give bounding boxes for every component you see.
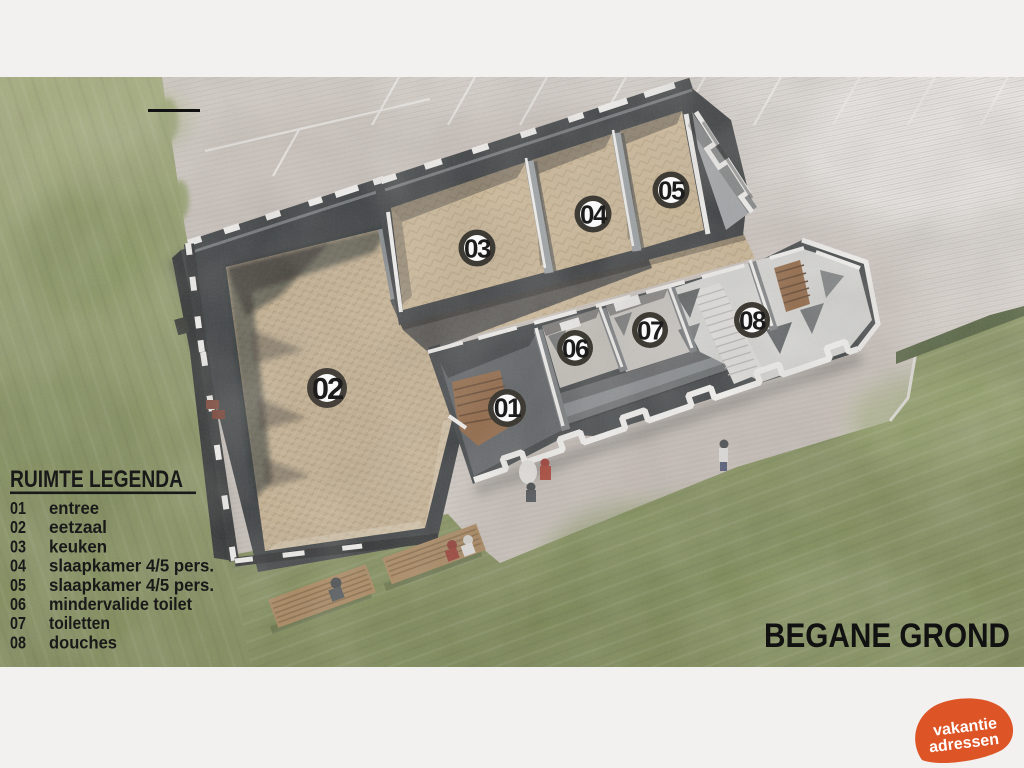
svg-text:02: 02 <box>10 517 26 537</box>
svg-text:01: 01 <box>10 498 26 518</box>
svg-text:06: 06 <box>562 334 589 364</box>
svg-text:02: 02 <box>312 371 343 406</box>
svg-text:BEGANE GROND: BEGANE GROND <box>764 617 1010 655</box>
svg-text:06: 06 <box>10 594 26 614</box>
svg-text:08: 08 <box>10 632 26 652</box>
svg-text:04: 04 <box>580 200 608 230</box>
svg-text:05: 05 <box>658 176 685 206</box>
svg-text:eetzaal: eetzaal <box>49 517 107 537</box>
svg-text:RUIMTE LEGENDA: RUIMTE LEGENDA <box>10 466 183 493</box>
svg-text:01: 01 <box>494 393 521 423</box>
svg-text:entree: entree <box>49 498 99 518</box>
svg-text:slaapkamer 4/5 pers.: slaapkamer 4/5 pers. <box>49 556 214 576</box>
svg-text:03: 03 <box>10 536 26 556</box>
svg-text:07: 07 <box>10 613 26 633</box>
svg-text:toiletten: toiletten <box>49 613 110 633</box>
svg-text:05: 05 <box>10 575 26 595</box>
svg-text:slaapkamer 4/5 pers.: slaapkamer 4/5 pers. <box>49 575 214 595</box>
svg-text:keuken: keuken <box>49 536 107 556</box>
svg-text:07: 07 <box>637 316 664 346</box>
svg-text:mindervalide toilet: mindervalide toilet <box>49 594 192 614</box>
svg-text:03: 03 <box>464 234 491 264</box>
svg-text:04: 04 <box>10 556 26 576</box>
svg-text:douches: douches <box>49 632 117 652</box>
svg-text:08: 08 <box>739 306 766 336</box>
